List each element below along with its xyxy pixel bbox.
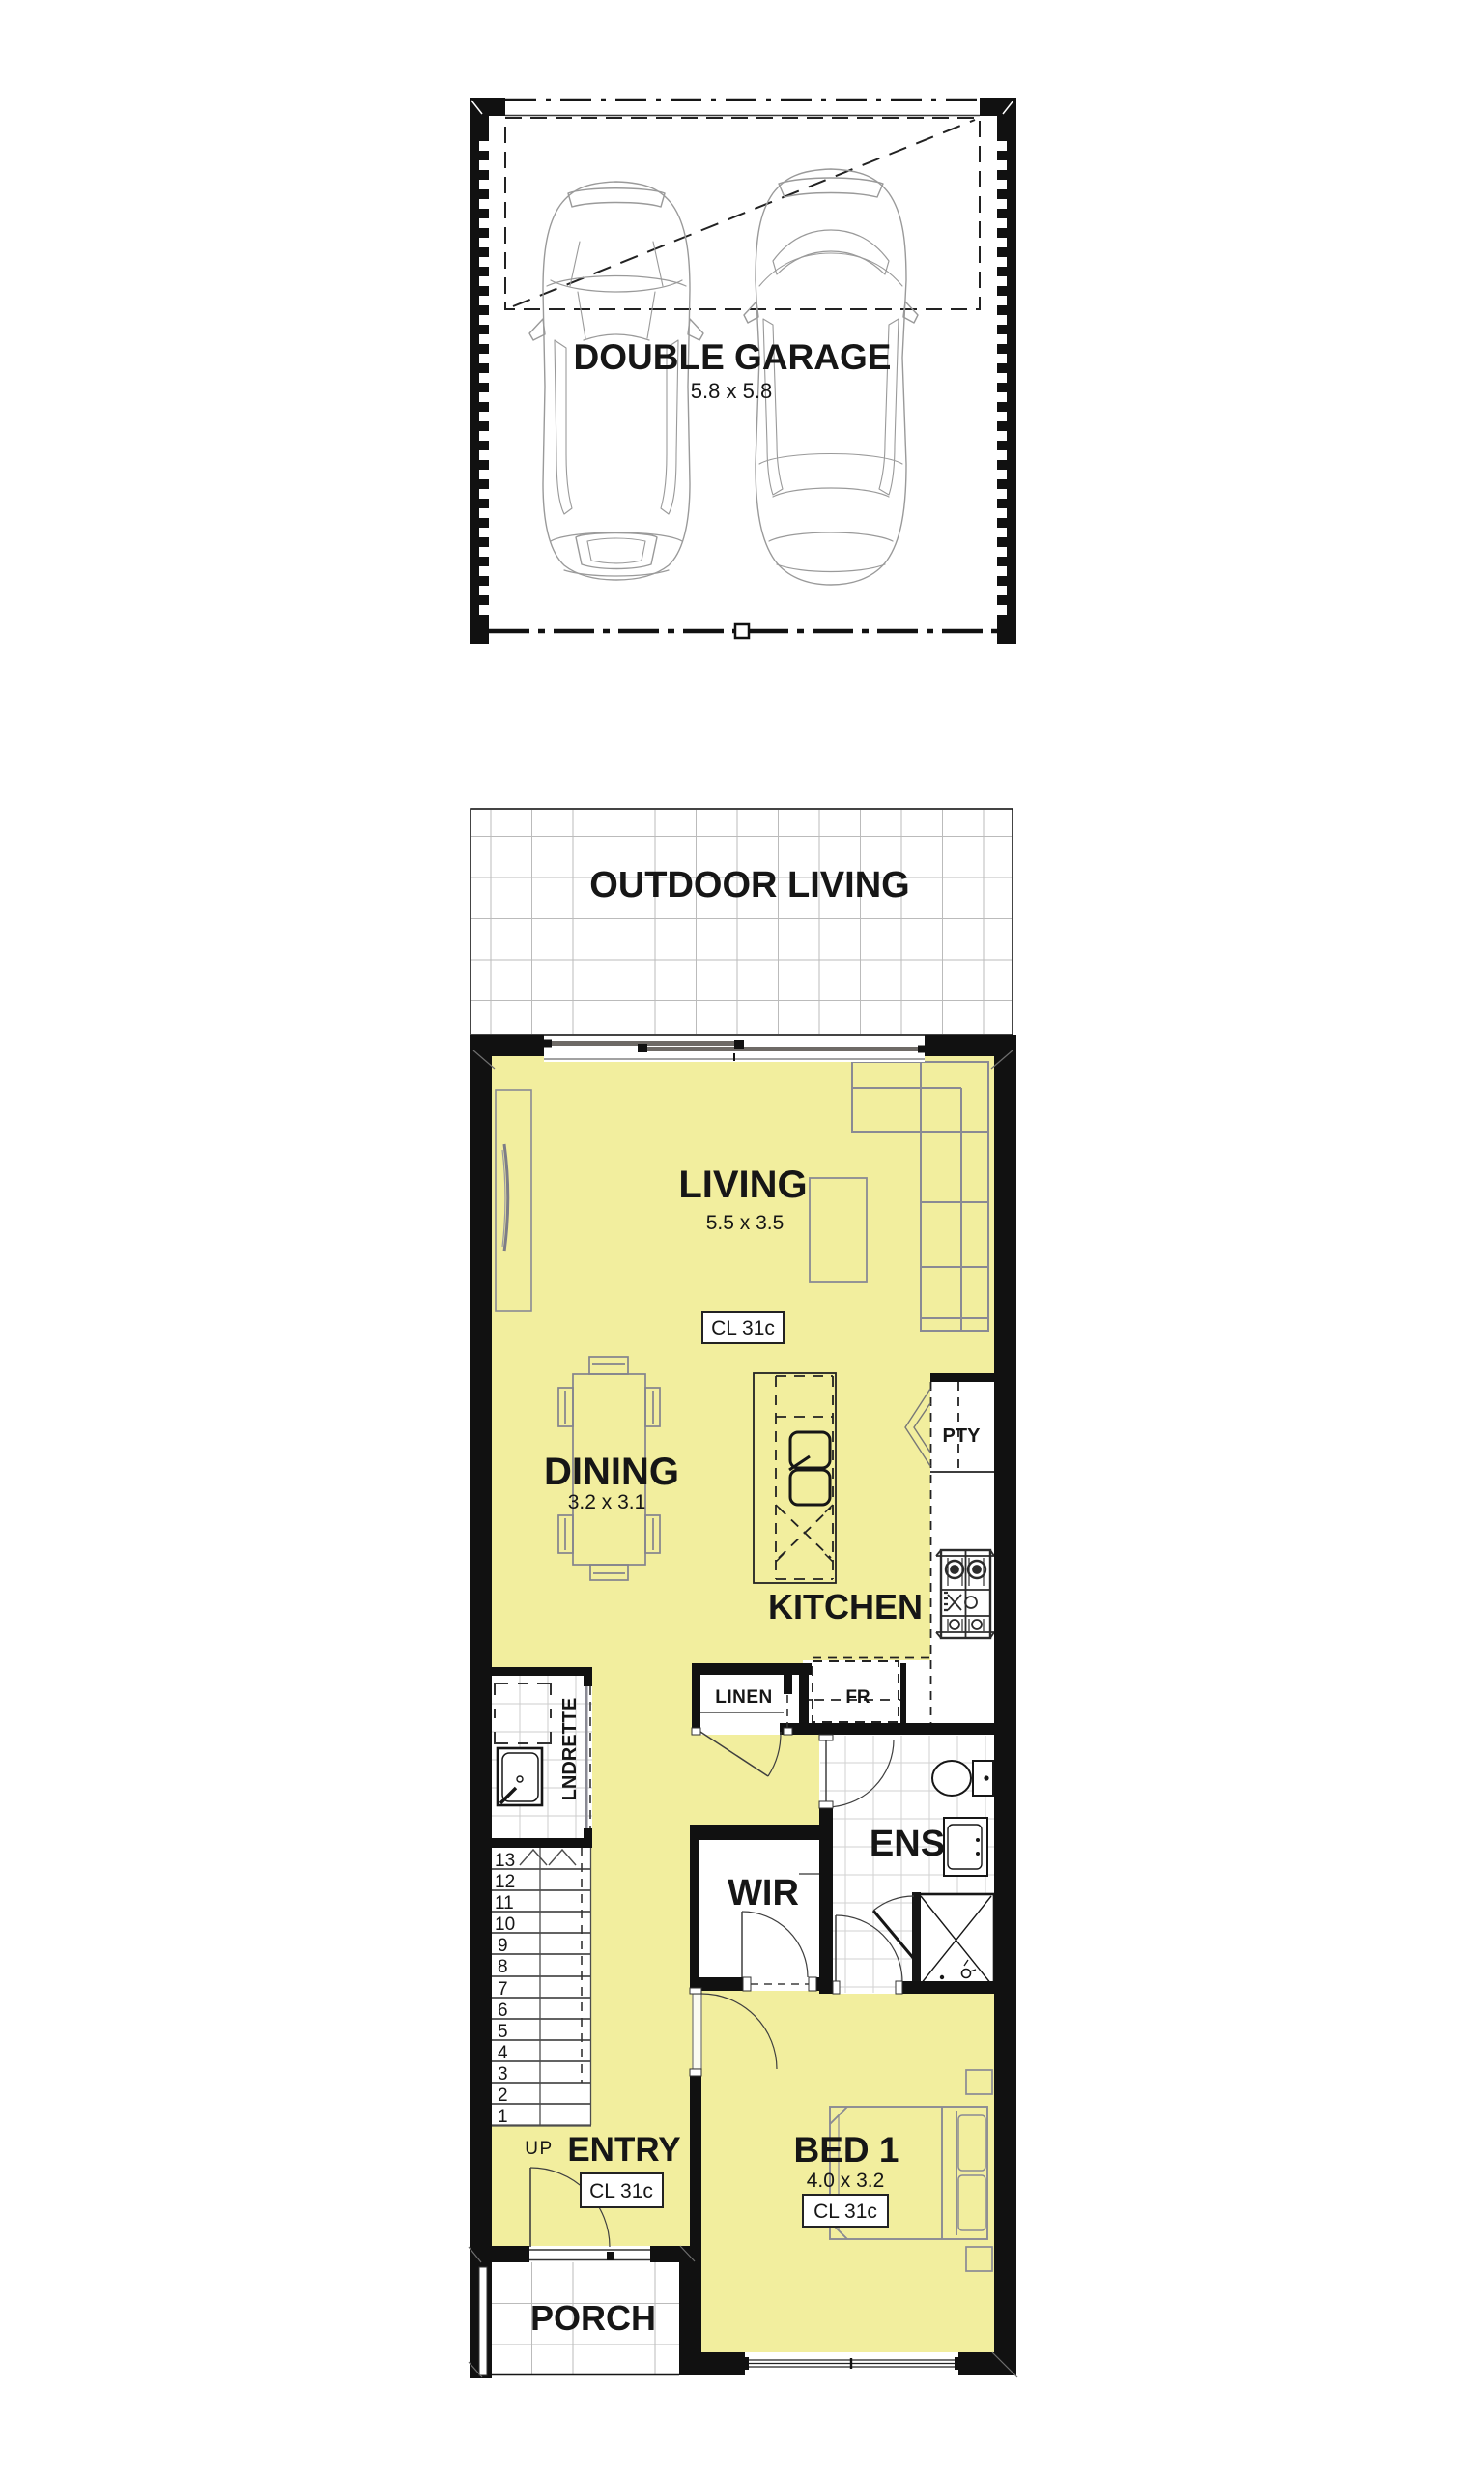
svg-text:4: 4 <box>498 2043 508 2063</box>
svg-text:KITCHEN: KITCHEN <box>768 1587 923 1626</box>
svg-text:11: 11 <box>495 1893 514 1913</box>
svg-text:LINEN: LINEN <box>715 1687 773 1708</box>
svg-text:12: 12 <box>495 1872 515 1892</box>
svg-text:CL 31c: CL 31c <box>813 2201 877 2223</box>
svg-text:CL 31c: CL 31c <box>589 2180 653 2202</box>
svg-text:3.2 x 3.1: 3.2 x 3.1 <box>568 1491 646 1513</box>
svg-text:WIR: WIR <box>728 1873 799 1913</box>
svg-text:3: 3 <box>498 2064 508 2085</box>
svg-text:ENTRY: ENTRY <box>567 2131 680 2169</box>
svg-text:8: 8 <box>498 1957 508 1977</box>
svg-text:1: 1 <box>498 2107 508 2127</box>
svg-text:LIVING: LIVING <box>678 1164 807 1206</box>
svg-text:6: 6 <box>498 2000 508 2021</box>
svg-text:5.5 x 3.5: 5.5 x 3.5 <box>706 1212 785 1234</box>
svg-text:2: 2 <box>498 2086 508 2106</box>
svg-text:BED 1: BED 1 <box>794 2130 899 2170</box>
svg-text:DOUBLE GARAGE: DOUBLE GARAGE <box>574 337 892 377</box>
svg-text:ENS: ENS <box>870 1824 945 1864</box>
svg-text:PTY: PTY <box>943 1425 982 1447</box>
svg-text:PORCH: PORCH <box>530 2298 656 2338</box>
svg-text:LNDRETTE: LNDRETTE <box>559 1698 581 1801</box>
svg-text:10: 10 <box>495 1914 515 1935</box>
svg-text:OUTDOOR LIVING: OUTDOOR LIVING <box>589 865 909 906</box>
svg-text:5.8 x 5.8: 5.8 x 5.8 <box>691 379 772 403</box>
svg-text:CL 31c: CL 31c <box>711 1317 775 1339</box>
svg-text:DINING: DINING <box>544 1451 679 1493</box>
svg-text:5: 5 <box>498 2022 508 2042</box>
svg-text:UP: UP <box>525 2139 553 2159</box>
svg-text:FR: FR <box>845 1687 870 1708</box>
svg-text:9: 9 <box>498 1936 508 1956</box>
svg-text:4.0 x 3.2: 4.0 x 3.2 <box>807 2170 885 2192</box>
svg-text:13: 13 <box>495 1851 515 1871</box>
svg-text:7: 7 <box>498 1979 508 1999</box>
